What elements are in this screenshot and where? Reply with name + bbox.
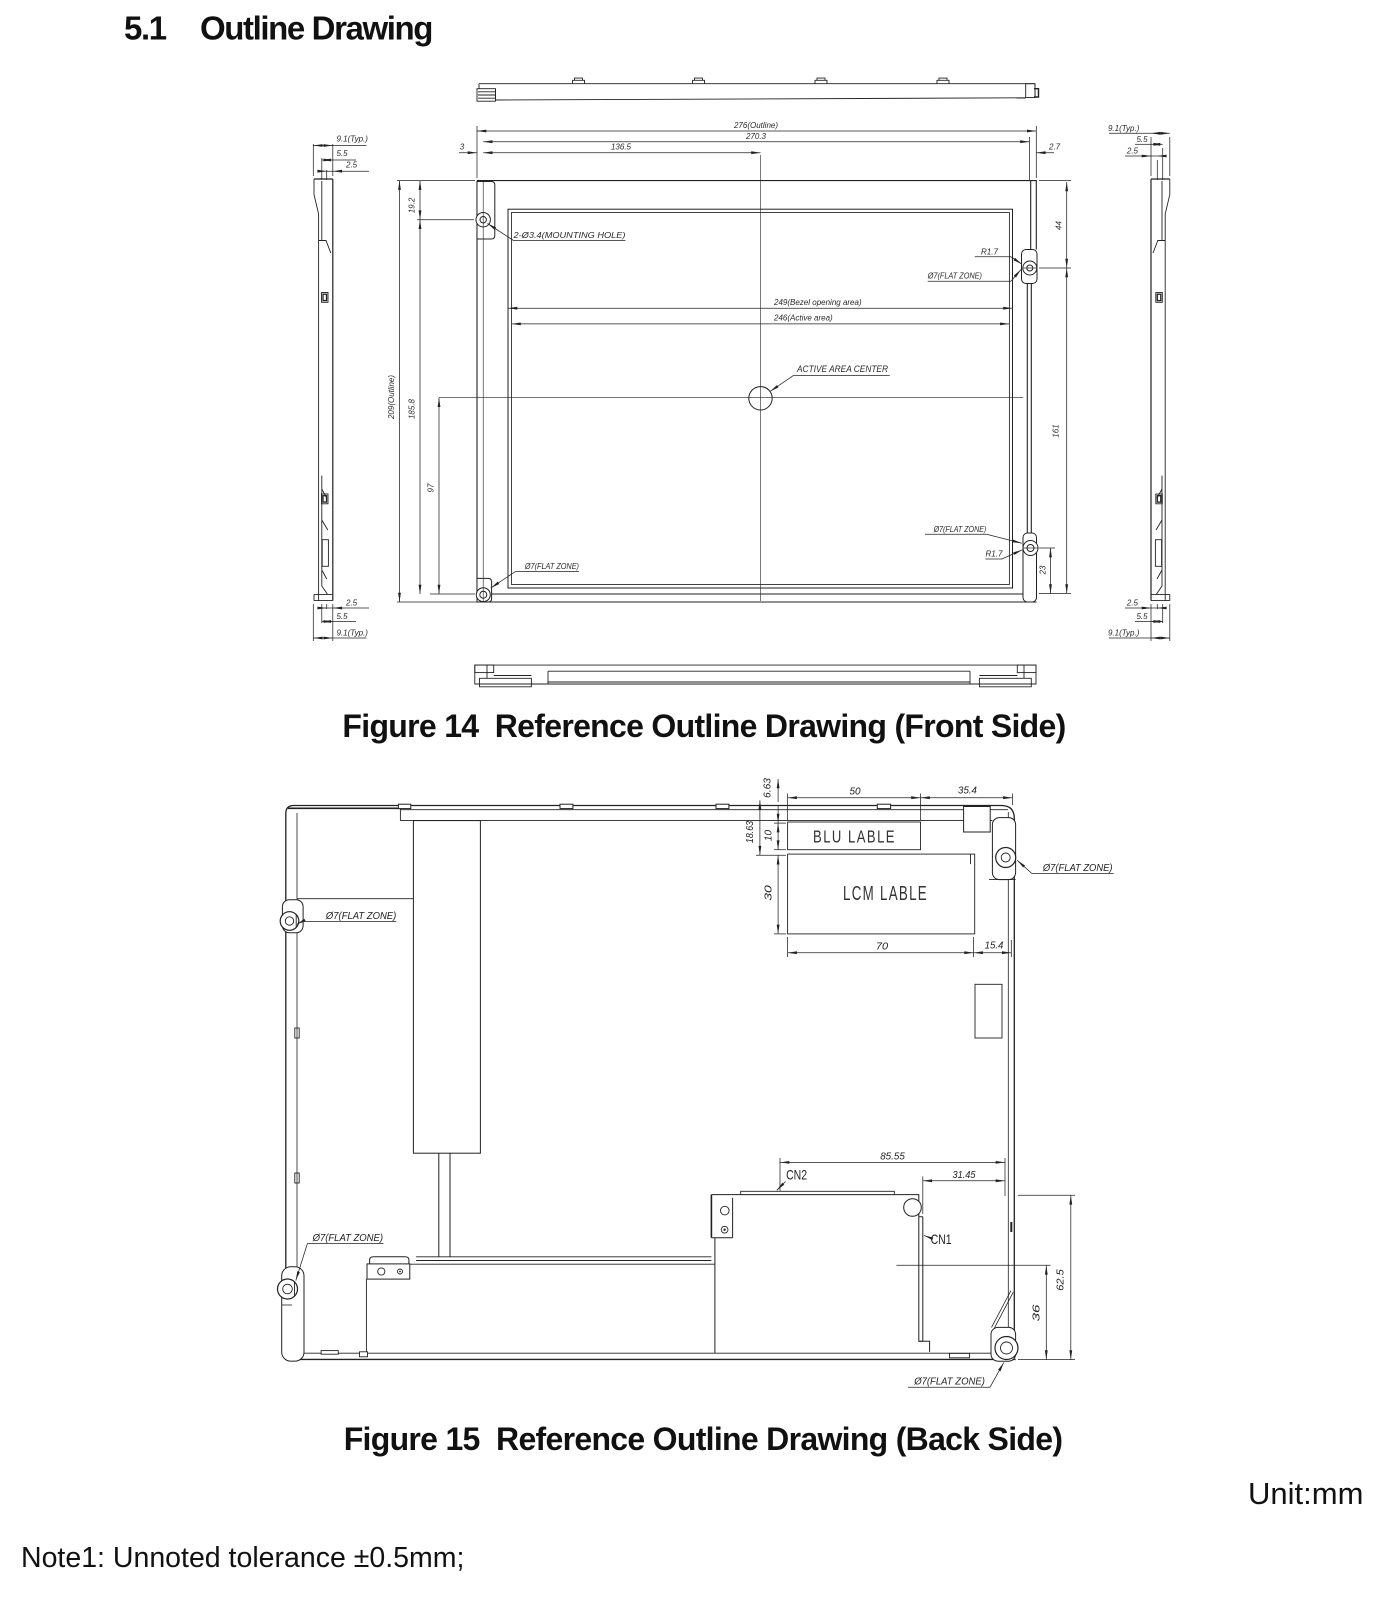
svg-text:85.55: 85.55 bbox=[880, 1152, 905, 1163]
svg-text:Outline Drawing: Outline Drawing bbox=[200, 10, 432, 47]
svg-text:R1.7: R1.7 bbox=[981, 247, 998, 256]
svg-text:10: 10 bbox=[764, 830, 775, 842]
svg-text:246(Active area): 246(Active area) bbox=[773, 314, 833, 323]
svg-text:30: 30 bbox=[764, 885, 775, 901]
svg-text:2-Ø3.4(MOUNTING HOLE): 2-Ø3.4(MOUNTING HOLE) bbox=[512, 231, 626, 240]
svg-text:9.1(Typ.): 9.1(Typ.) bbox=[1108, 124, 1140, 133]
svg-text:6.63: 6.63 bbox=[763, 778, 774, 798]
svg-text:CN1: CN1 bbox=[931, 1231, 952, 1247]
svg-text:31.45: 31.45 bbox=[953, 1170, 976, 1181]
svg-text:97: 97 bbox=[427, 483, 436, 492]
svg-text:185.8: 185.8 bbox=[408, 398, 417, 419]
svg-text:249(Bezel opening area): 249(Bezel opening area) bbox=[773, 298, 862, 307]
svg-text:270.3: 270.3 bbox=[745, 132, 767, 141]
svg-text:Ø7(FLAT ZONE): Ø7(FLAT ZONE) bbox=[325, 911, 396, 922]
svg-text:70: 70 bbox=[876, 942, 889, 953]
svg-text:Ø7(FLAT ZONE): Ø7(FLAT ZONE) bbox=[524, 562, 579, 571]
svg-text:Ø7(FLAT ZONE): Ø7(FLAT ZONE) bbox=[933, 525, 987, 534]
svg-text:136.5: 136.5 bbox=[611, 143, 632, 152]
svg-text:35.4: 35.4 bbox=[958, 786, 977, 797]
svg-text:LCM LABLE: LCM LABLE bbox=[843, 882, 928, 905]
svg-text:161: 161 bbox=[1052, 424, 1061, 437]
svg-text:62.5: 62.5 bbox=[1056, 1269, 1067, 1291]
svg-text:ACTIVE AREA CENTER: ACTIVE AREA CENTER bbox=[796, 364, 888, 374]
svg-text:276(Outline): 276(Outline) bbox=[733, 121, 778, 130]
svg-text:9.1(Typ.): 9.1(Typ.) bbox=[337, 629, 369, 638]
svg-text:5.5: 5.5 bbox=[337, 149, 349, 158]
svg-text:BLU LABLE: BLU LABLE bbox=[813, 827, 896, 847]
svg-text:50: 50 bbox=[849, 787, 861, 798]
svg-text:3: 3 bbox=[460, 143, 465, 152]
svg-text:23: 23 bbox=[1039, 565, 1048, 575]
svg-text:2.5: 2.5 bbox=[1126, 599, 1139, 608]
svg-text:Figure 14 Reference Outline D: Figure 14 Reference Outline Drawing (Fro… bbox=[342, 708, 1065, 744]
svg-text:Unit:mm: Unit:mm bbox=[1248, 1476, 1363, 1511]
svg-text:5.5: 5.5 bbox=[337, 612, 349, 621]
svg-text:2.7: 2.7 bbox=[1048, 143, 1061, 152]
svg-text:Figure 15 Reference Outline D: Figure 15 Reference Outline Drawing (Bac… bbox=[344, 1421, 1063, 1457]
svg-text:5.5: 5.5 bbox=[1136, 612, 1148, 621]
svg-text:9.1(Typ.): 9.1(Typ.) bbox=[337, 135, 369, 144]
svg-text:18.63: 18.63 bbox=[745, 821, 756, 844]
svg-text:R1.7: R1.7 bbox=[986, 550, 1003, 559]
svg-text:5.1: 5.1 bbox=[124, 10, 167, 47]
svg-text:36: 36 bbox=[1032, 1304, 1043, 1322]
svg-text:2.5: 2.5 bbox=[345, 599, 358, 608]
svg-text:Ø7(FLAT ZONE): Ø7(FLAT ZONE) bbox=[312, 1233, 383, 1244]
svg-text:2.5: 2.5 bbox=[345, 161, 358, 170]
svg-text:9.1(Typ.): 9.1(Typ.) bbox=[1108, 629, 1140, 638]
svg-text:209(Outline): 209(Outline) bbox=[387, 375, 396, 420]
svg-text:15.4: 15.4 bbox=[985, 941, 1004, 952]
svg-text:Ø7(FLAT ZONE): Ø7(FLAT ZONE) bbox=[1042, 863, 1113, 874]
svg-text:5.5: 5.5 bbox=[1136, 135, 1148, 144]
svg-text:19.2: 19.2 bbox=[408, 197, 417, 213]
svg-text:Note1: Unnoted tolerance ±0.5m: Note1: Unnoted tolerance ±0.5mm; bbox=[21, 1542, 464, 1574]
svg-text:2.5: 2.5 bbox=[1126, 147, 1139, 156]
svg-text:CN2: CN2 bbox=[786, 1166, 807, 1182]
svg-text:Ø7(FLAT ZONE): Ø7(FLAT ZONE) bbox=[913, 1377, 985, 1388]
svg-text:Ø7(FLAT ZONE): Ø7(FLAT ZONE) bbox=[927, 272, 983, 281]
svg-text:44: 44 bbox=[1055, 221, 1064, 230]
